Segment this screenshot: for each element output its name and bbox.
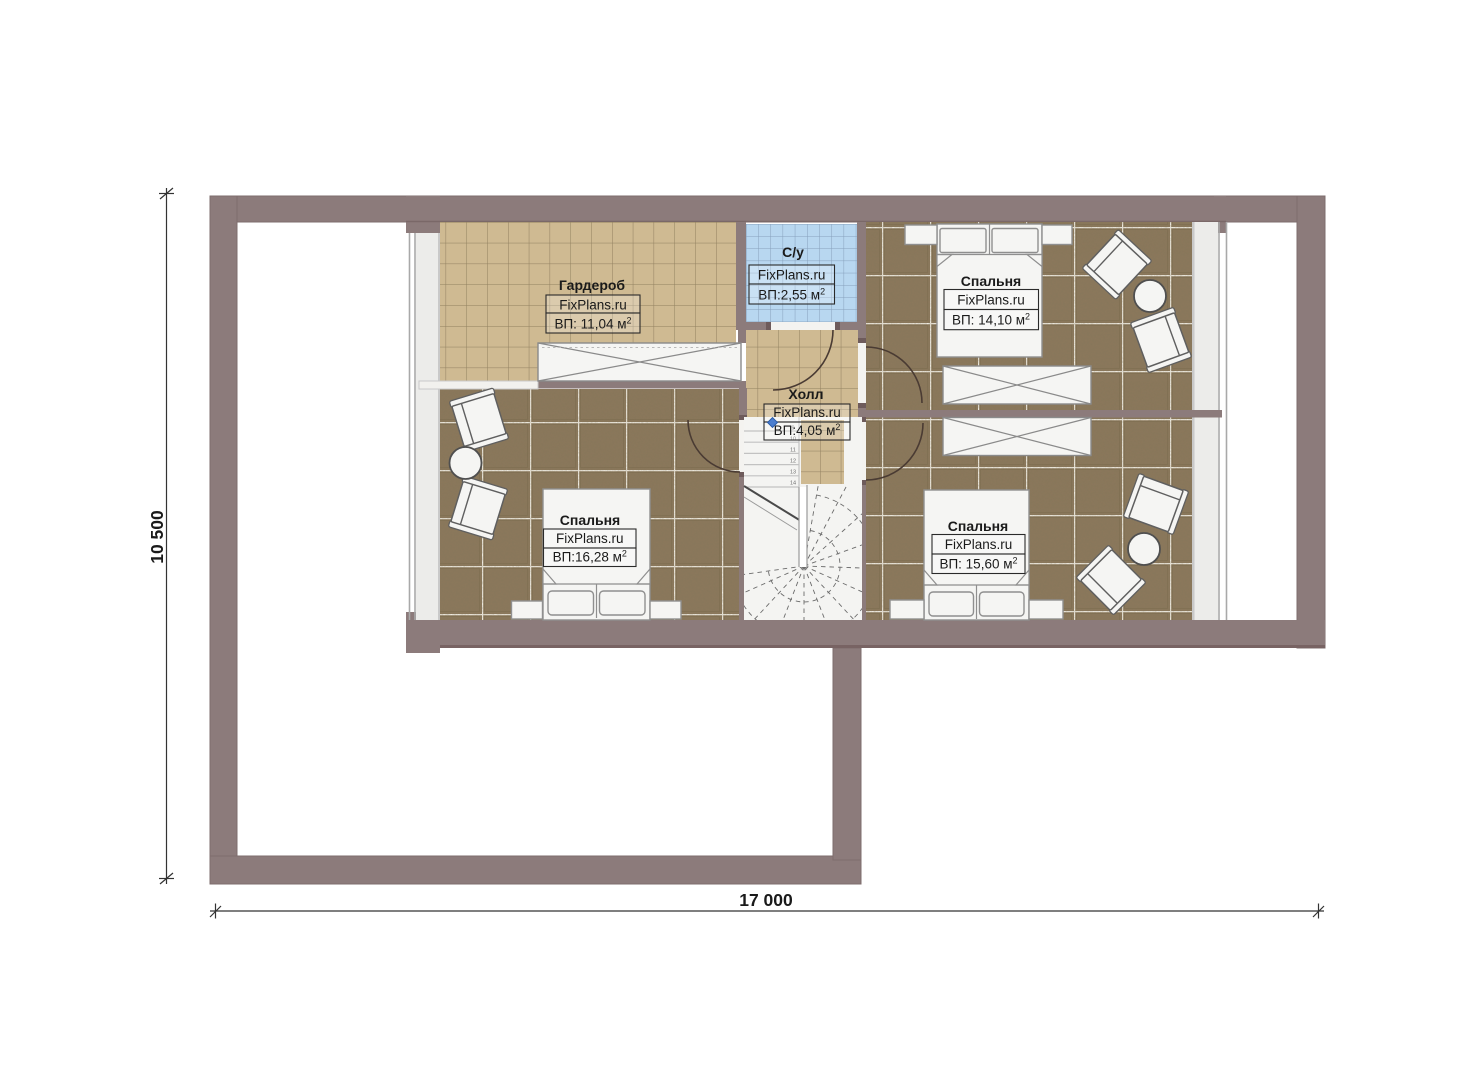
svg-text:FixPlans.ru: FixPlans.ru bbox=[758, 268, 826, 283]
svg-text:Спальня: Спальня bbox=[948, 518, 1008, 534]
svg-text:ВП: 14,10 м2: ВП: 14,10 м2 bbox=[952, 312, 1030, 328]
svg-text:FixPlans.ru: FixPlans.ru bbox=[957, 293, 1025, 308]
svg-text:17 000: 17 000 bbox=[739, 890, 793, 910]
svg-text:14: 14 bbox=[790, 481, 796, 487]
svg-text:FixPlans.ru: FixPlans.ru bbox=[556, 531, 624, 546]
svg-text:С/у: С/у bbox=[782, 244, 804, 260]
svg-text:FixPlans.ru: FixPlans.ru bbox=[945, 537, 1013, 552]
svg-text:ВП:4,05 м2: ВП:4,05 м2 bbox=[774, 422, 841, 438]
svg-text:13: 13 bbox=[790, 470, 796, 476]
svg-text:Холл: Холл bbox=[788, 386, 823, 402]
svg-text:FixPlans.ru: FixPlans.ru bbox=[773, 405, 841, 420]
svg-text:Спальня: Спальня bbox=[961, 273, 1021, 289]
svg-text:10 500: 10 500 bbox=[147, 510, 167, 564]
svg-text:Гардероб: Гардероб bbox=[559, 277, 626, 293]
svg-text:12: 12 bbox=[790, 459, 796, 465]
svg-text:11: 11 bbox=[790, 448, 796, 454]
svg-text:ВП:2,55 м2: ВП:2,55 м2 bbox=[758, 287, 825, 303]
svg-text:ВП:16,28 м2: ВП:16,28 м2 bbox=[553, 549, 627, 565]
svg-text:ВП: 11,04 м2: ВП: 11,04 м2 bbox=[554, 316, 631, 332]
svg-text:ВП: 15,60 м2: ВП: 15,60 м2 bbox=[939, 556, 1017, 572]
svg-text:FixPlans.ru: FixPlans.ru bbox=[559, 298, 627, 313]
svg-text:Спальня: Спальня bbox=[560, 512, 620, 528]
